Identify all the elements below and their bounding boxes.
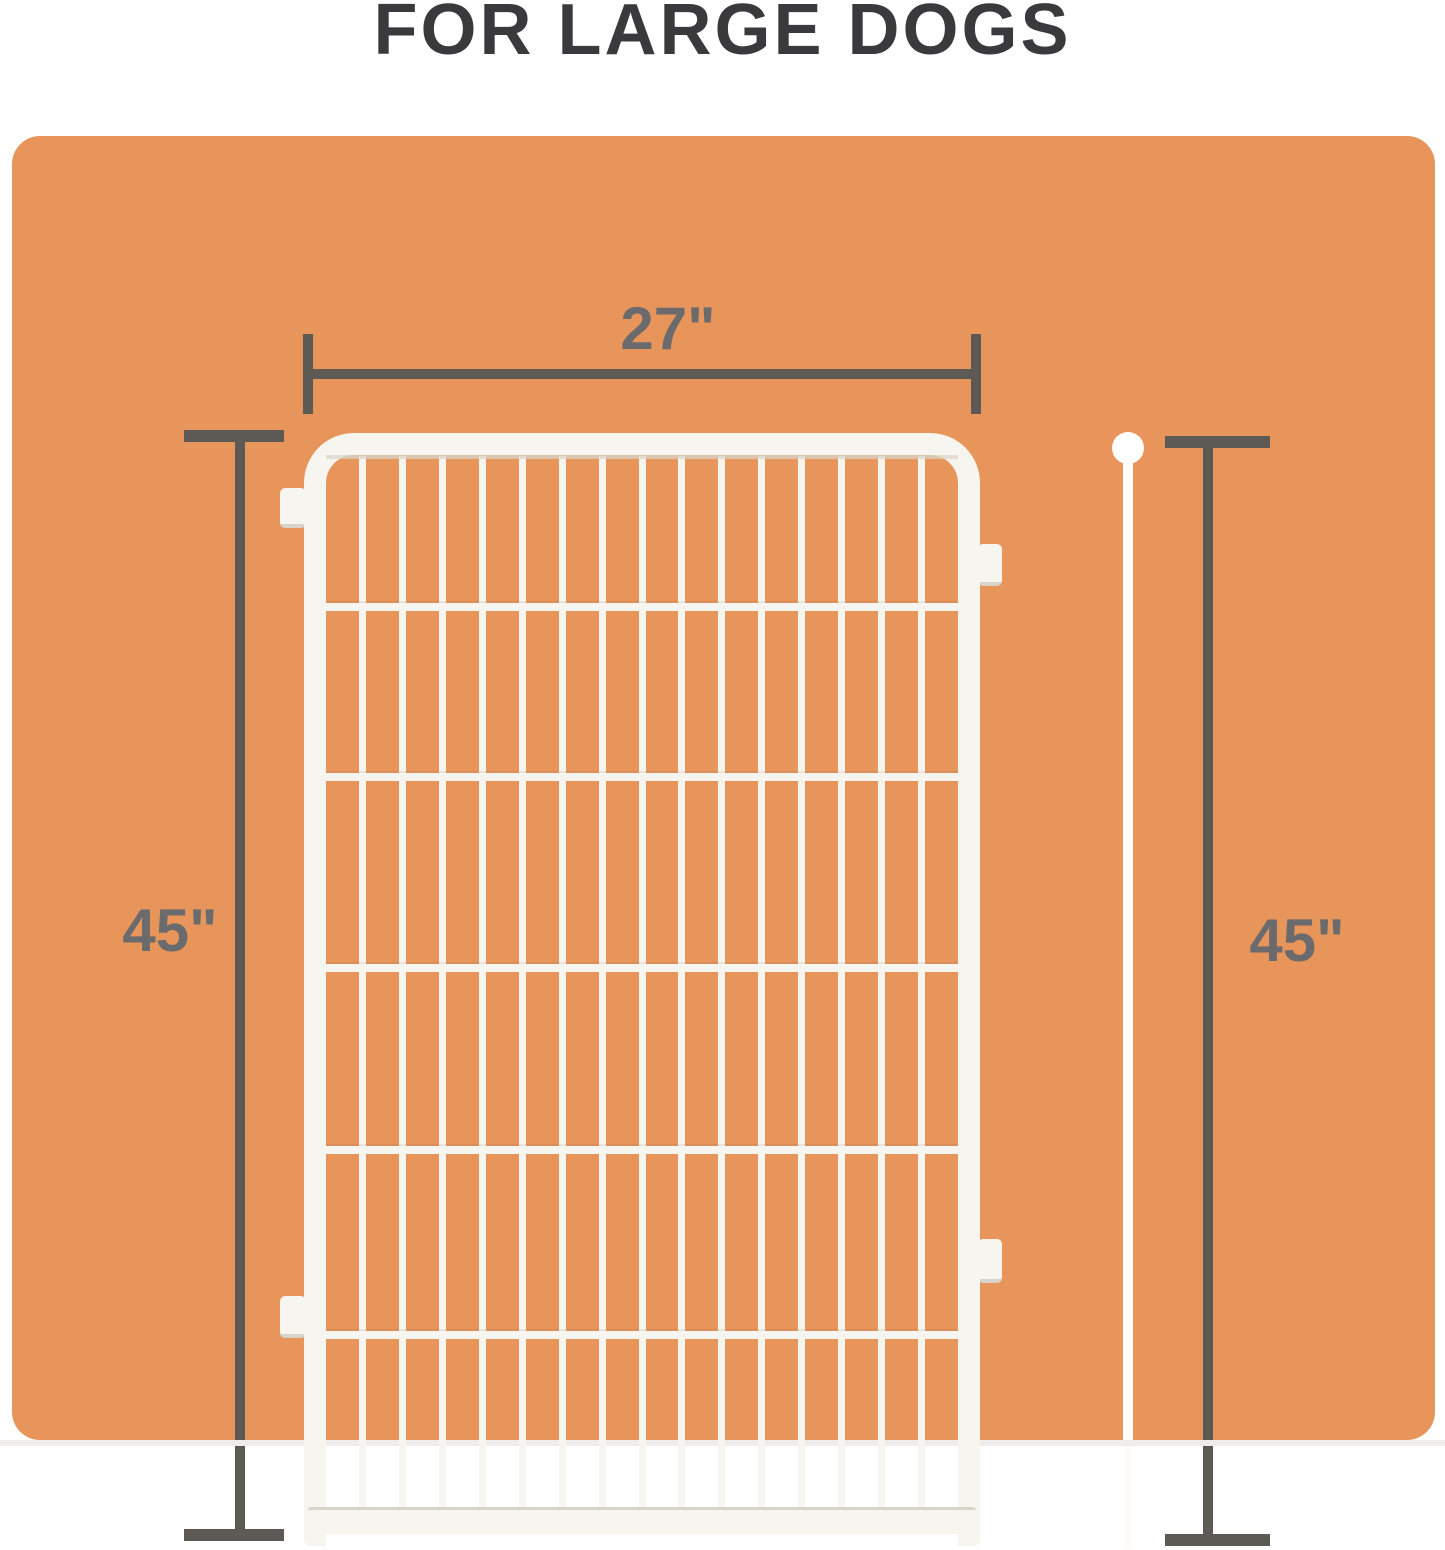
pole-top-ball [1112,432,1144,464]
connector-tab [978,1239,1002,1283]
dimension-end-cap [184,430,284,442]
left-height-dimension-line [235,436,245,1536]
product-infographic: { "title": "FOR LARGE DOGS", "dimensions… [0,0,1445,1446]
dimension-end-cap [1165,436,1270,448]
connector-tab [978,544,1002,586]
connector-tab [280,1296,306,1338]
connector-tab [280,488,306,528]
left-height-dimension-label: 45" [110,901,230,961]
panel-frame [304,433,980,1546]
diagram-card: 27" 45" 45" [12,136,1435,1440]
panel-bottom-rail [308,1507,976,1534]
right-height-dimension-line [1203,442,1213,1542]
dimension-end-cap [971,334,981,414]
measuring-pole [1123,458,1133,1550]
dimension-end-cap [1165,1534,1270,1546]
dimension-end-cap [303,334,313,414]
width-dimension-label: 27" [568,299,768,359]
page-title: FOR LARGE DOGS [0,0,1445,68]
right-height-dimension-label: 45" [1237,911,1357,971]
panel-frame-shadow [326,455,958,459]
width-dimension-line [303,369,981,379]
dimension-end-cap [184,1529,284,1541]
